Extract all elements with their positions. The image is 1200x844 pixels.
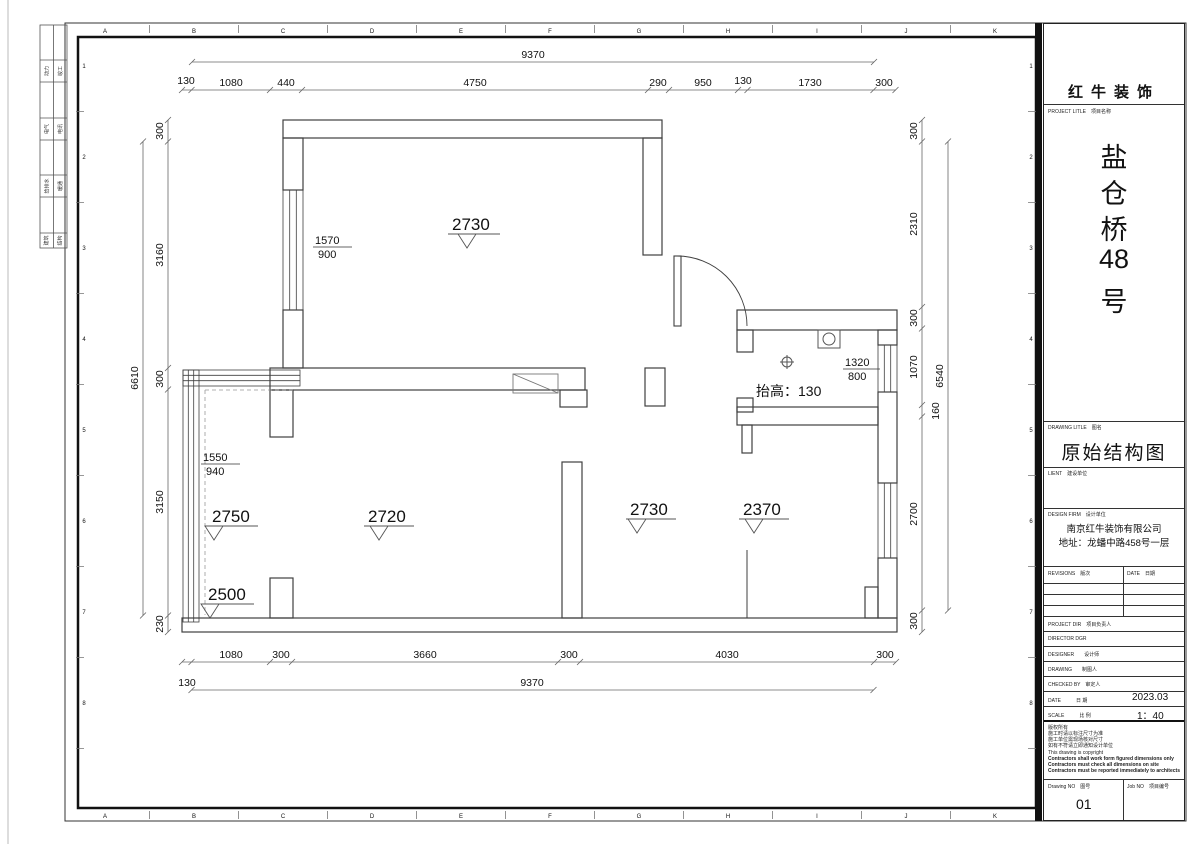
level-value: 2500 [208, 585, 246, 604]
svg-text:300: 300 [154, 122, 166, 140]
dims-left: 300 3160 300 3150 230 6610 [129, 122, 166, 633]
grid-numbers-left: 12345678 [82, 64, 86, 707]
door-leaf [674, 256, 681, 326]
dims-top: 9370 130 1080 440 4750 290 950 130 1730 … [177, 49, 893, 89]
divider [1044, 676, 1184, 677]
svg-text:3: 3 [82, 246, 86, 252]
wall-pier-upper [270, 390, 293, 437]
svg-text:K: K [993, 814, 997, 820]
svg-text:B: B [192, 29, 196, 35]
svg-text:A: A [103, 29, 107, 35]
level-value: 2730 [630, 500, 668, 519]
divider [1044, 566, 1184, 567]
wall-stub-middle [560, 390, 587, 407]
window-height: 800 [848, 371, 866, 383]
svg-text:1: 1 [1029, 64, 1033, 70]
svg-text:C: C [281, 29, 286, 35]
job-no-label: Job NO 项目编号 [1127, 783, 1169, 790]
window-width: 1570 [315, 235, 339, 247]
window-width: 1550 [203, 452, 227, 464]
wall-middle [270, 368, 585, 390]
designer-label: DESIGNER 设计师 [1048, 651, 1099, 658]
director-label: DIRECTOR DGR [1048, 636, 1087, 642]
sheet-outer-border [65, 23, 1186, 821]
svg-text:C: C [281, 814, 286, 820]
svg-text:6540: 6540 [934, 364, 946, 388]
project-name-char: 盐 [1044, 136, 1184, 175]
divider [1123, 779, 1124, 820]
divider [1044, 646, 1184, 647]
svg-text:1: 1 [82, 64, 86, 70]
window-bath [878, 345, 897, 392]
divider [1044, 605, 1184, 606]
drawing-label: DRAWING LITLE 图名 [1048, 424, 1102, 431]
svg-text:E: E [459, 29, 463, 35]
svg-text:3: 3 [1029, 246, 1033, 252]
sig-cell: 电气 [44, 124, 51, 134]
wall-right-b [878, 392, 897, 483]
svg-text:F: F [548, 814, 552, 820]
window-kitchen [878, 483, 897, 558]
sig-cell: 建筑 [43, 235, 50, 245]
svg-text:6610: 6610 [129, 366, 141, 390]
project-name-char: 仓 [1044, 172, 1184, 211]
svg-text:290: 290 [649, 77, 667, 89]
svg-text:H: H [726, 814, 730, 820]
svg-text:2700: 2700 [908, 502, 920, 526]
svg-text:G: G [637, 29, 642, 35]
svg-text:K: K [993, 29, 997, 35]
divider [1044, 631, 1184, 632]
svg-text:300: 300 [908, 309, 920, 327]
level-markers [201, 234, 789, 618]
checked-by-label: CHECKED BY 审定人 [1048, 681, 1100, 688]
design-firm-name: 南京红牛装饰有限公司 [1044, 521, 1184, 535]
drawing-frame [78, 37, 1036, 808]
bathroom-fixtures [780, 330, 840, 369]
wall-bath-bottom [737, 407, 878, 425]
window-upper-left [283, 190, 303, 310]
svg-text:4750: 4750 [463, 77, 487, 89]
balcony-dashed-line [205, 390, 295, 615]
wall-piece-middle-right [645, 368, 665, 406]
sig-cell: 结构 [57, 235, 64, 245]
grid-ticks [76, 25, 1036, 819]
svg-text:7: 7 [82, 610, 86, 616]
divider [1044, 104, 1184, 105]
level-value: 2730 [452, 215, 490, 234]
windows [183, 190, 897, 622]
divider [1044, 508, 1184, 509]
window-balcony-left [183, 370, 199, 622]
svg-text:7: 7 [1029, 610, 1033, 616]
wall-bath-left-a [737, 330, 753, 352]
svg-text:G: G [637, 814, 642, 820]
note-line: 如有不符请立即通知设计单位 [1048, 743, 1113, 749]
vent-pipe-icon [823, 333, 835, 345]
window-height: 900 [318, 249, 336, 261]
title-block-divider-bar [1035, 23, 1042, 821]
wall-right-a [878, 330, 897, 345]
sig-cell: 竣工 [57, 66, 64, 76]
date-label: DATE 日 期 [1048, 697, 1087, 704]
svg-text:B: B [192, 814, 196, 820]
wall-partition-top [742, 425, 752, 453]
divider [1044, 583, 1184, 584]
company-name: 红牛装饰 [1044, 81, 1184, 102]
svg-text:2: 2 [1029, 155, 1033, 161]
project-name-char: 号 [1044, 280, 1184, 319]
scale-label: SCALE 比 例 [1048, 712, 1091, 719]
drawing-sheet: ABCDEFGHIJK ABCDEFGHIJK 12345678 1234567… [0, 0, 1200, 844]
dims-bottom: 1080 300 3660 300 4030 300 130 9370 [178, 649, 894, 689]
divider [1044, 720, 1184, 722]
svg-text:4: 4 [82, 337, 86, 343]
sig-cell: 暖通 [57, 181, 64, 191]
note-line: Contractors must be reported immediately… [1048, 768, 1180, 774]
svg-text:J: J [905, 814, 908, 820]
svg-text:H: H [726, 29, 730, 35]
svg-text:950: 950 [694, 77, 712, 89]
wall-right-c [878, 558, 897, 618]
svg-text:3150: 3150 [154, 490, 166, 514]
svg-text:I: I [816, 29, 818, 35]
divider [1044, 421, 1184, 422]
floor-plan-canvas: ABCDEFGHIJK ABCDEFGHIJK 12345678 1234567… [0, 0, 1200, 844]
project-dir-label: PROJECT DIR 项目负责人 [1048, 621, 1111, 628]
svg-text:230: 230 [154, 615, 166, 633]
svg-text:I: I [816, 814, 818, 820]
revisions-label: REVISIONS 版次 [1048, 570, 1090, 577]
title-block: 红牛装饰 PROJECT LITLE 项目名称 盐 仓 桥 48 号 DRAWI… [1043, 23, 1185, 821]
svg-text:300: 300 [908, 122, 920, 140]
signature-strip: 动力 竣工 电气 电讯 给排水 暖通 建筑 结构 [40, 25, 67, 248]
window-width: 1320 [845, 357, 869, 369]
svg-text:A: A [103, 814, 107, 820]
project-name-char: 桥 [1044, 208, 1184, 247]
svg-text:5: 5 [82, 428, 86, 434]
level-value: 2750 [212, 507, 250, 526]
svg-text:E: E [459, 814, 463, 820]
drawing-no-value: 01 [1076, 796, 1092, 812]
design-firm-address: 地址：龙蟠中路458号一层 [1044, 535, 1184, 549]
wall-room-divider [562, 462, 582, 618]
project-name-char: 48 [1044, 244, 1184, 275]
divider [1044, 594, 1184, 595]
wall-bottom [182, 618, 897, 632]
drawing-by-label: DRAWING 制图人 [1048, 666, 1097, 673]
dims-right: 300 2310 300 1070 2700 300 160 6540 [908, 122, 946, 630]
svg-text:2310: 2310 [908, 212, 920, 236]
grid-numbers-right: 12345678 [1029, 64, 1033, 707]
svg-text:D: D [370, 29, 375, 35]
grid-letters-top: ABCDEFGHIJK [103, 29, 997, 35]
svg-text:3660: 3660 [413, 649, 437, 661]
wall-bath-left-b [737, 398, 753, 412]
divider [1044, 661, 1184, 662]
svg-text:6: 6 [1029, 519, 1033, 525]
divider [1044, 467, 1184, 468]
design-firm-label: DESIGN FIRM 设计单位 [1048, 511, 1106, 518]
grid-letters-bottom: ABCDEFGHIJK [103, 814, 997, 820]
level-value: 2720 [368, 507, 406, 526]
svg-text:130: 130 [734, 75, 752, 87]
divider [1123, 566, 1124, 616]
svg-text:300: 300 [272, 649, 290, 661]
svg-text:1070: 1070 [908, 355, 920, 379]
entry-door [674, 256, 747, 326]
svg-text:440: 440 [277, 77, 295, 89]
wall-top [283, 120, 662, 138]
client-label: LIENT 建设单位 [1048, 470, 1087, 477]
window-height: 940 [206, 466, 224, 478]
drawing-title: 原始结构图 [1044, 438, 1184, 465]
date-value: 2023.03 [1132, 692, 1168, 703]
svg-text:300: 300 [908, 612, 920, 630]
divider [1044, 779, 1184, 780]
svg-text:1080: 1080 [219, 77, 243, 89]
svg-text:8: 8 [1029, 701, 1033, 707]
svg-text:F: F [548, 29, 552, 35]
wall-bath-top [737, 310, 897, 330]
bathroom-note: 抬高：130 [756, 383, 822, 399]
svg-text:300: 300 [875, 77, 893, 89]
sig-cell: 给排水 [44, 178, 51, 193]
svg-text:4030: 4030 [715, 649, 739, 661]
project-label: PROJECT LITLE 项目名称 [1048, 108, 1111, 115]
walls [182, 120, 897, 632]
wall-upper-right [643, 138, 662, 255]
svg-text:300: 300 [154, 370, 166, 388]
svg-text:6: 6 [82, 519, 86, 525]
window-balcony-top [183, 370, 300, 386]
svg-text:1080: 1080 [219, 649, 243, 661]
date-col-label: DATE 日期 [1127, 570, 1155, 577]
drawing-no-label: Drawing NO 图号 [1048, 783, 1090, 790]
svg-text:9370: 9370 [521, 49, 545, 61]
svg-text:D: D [370, 814, 375, 820]
dimension-lines [140, 59, 951, 693]
wall-pier-lower [270, 578, 293, 618]
divider [1044, 616, 1184, 617]
wall-upper-left-a [283, 138, 303, 190]
wall-upper-left-b [283, 310, 303, 368]
svg-text:3160: 3160 [154, 243, 166, 267]
svg-text:4: 4 [1029, 337, 1033, 343]
svg-text:300: 300 [876, 649, 894, 661]
svg-text:130: 130 [178, 677, 196, 689]
svg-text:J: J [905, 29, 908, 35]
svg-text:8: 8 [82, 701, 86, 707]
level-value: 2370 [743, 500, 781, 519]
wall-stub-bottom-right [865, 587, 878, 618]
svg-text:5: 5 [1029, 428, 1033, 434]
svg-text:300: 300 [560, 649, 578, 661]
svg-text:2: 2 [82, 155, 86, 161]
svg-text:130: 130 [177, 75, 195, 87]
svg-text:1730: 1730 [798, 77, 822, 89]
sig-cell: 动力 [44, 66, 51, 76]
svg-text:9370: 9370 [520, 677, 544, 689]
svg-text:160: 160 [930, 402, 942, 420]
sig-cell: 电讯 [57, 124, 64, 134]
